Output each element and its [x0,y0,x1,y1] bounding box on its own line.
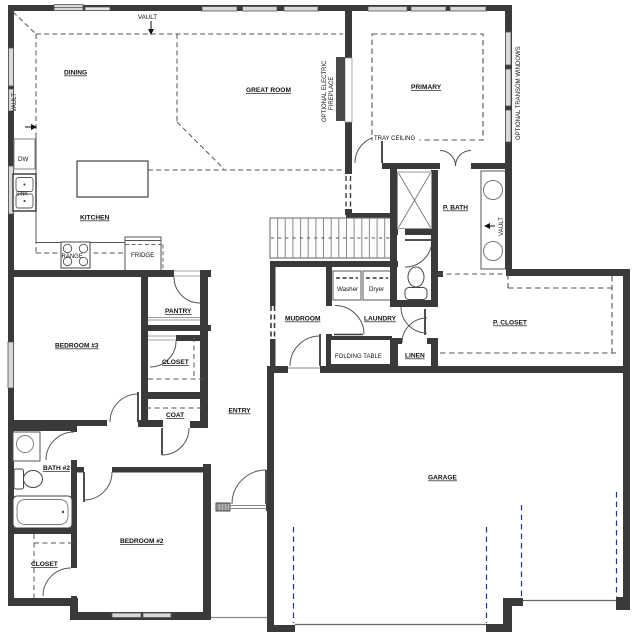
svg-text:MUDROOM: MUDROOM [285,316,321,323]
svg-text:Washer: Washer [337,286,358,293]
svg-text:VAULT: VAULT [138,14,157,21]
svg-text:GREAT ROOM: GREAT ROOM [246,87,291,94]
svg-text:PRIMARY: PRIMARY [411,84,442,91]
svg-text:CLOSET: CLOSET [162,359,189,366]
svg-text:OPTIONAL ELECTRIC: OPTIONAL ELECTRIC [322,60,328,122]
svg-text:BATH #2: BATH #2 [43,465,70,472]
svg-text:OPTIONAL TRANSOM WINDOWS: OPTIONAL TRANSOM WINDOWS [516,46,522,140]
svg-text:ENTRY: ENTRY [229,408,252,415]
svg-text:VAULT: VAULT [11,93,18,112]
svg-text:LINEN: LINEN [405,353,425,360]
svg-text:P. BATH: P. BATH [443,205,468,212]
svg-text:BEDROOM #2: BEDROOM #2 [120,538,164,545]
svg-text:DINING: DINING [64,70,87,77]
svg-text:FIREPLACE: FIREPLACE [329,77,335,110]
svg-text:BEDROOM #3: BEDROOM #3 [55,343,99,350]
svg-text:RANGE: RANGE [62,254,83,260]
svg-text:LAUNDRY: LAUNDRY [364,316,397,323]
svg-text:PANTRY: PANTRY [165,308,192,315]
svg-text:Dryer: Dryer [369,286,384,293]
svg-text:COAT: COAT [166,412,184,419]
svg-text:FOLDING TABLE: FOLDING TABLE [335,354,382,360]
svg-text:TRAY CEILING: TRAY CEILING [374,136,415,142]
svg-text:VAULT: VAULT [498,217,505,236]
svg-text:GARAGE: GARAGE [428,475,458,482]
svg-text:SINK: SINK [16,192,28,198]
svg-text:KITCHEN: KITCHEN [80,215,110,222]
svg-text:DW: DW [18,156,28,163]
svg-text:P. CLOSET: P. CLOSET [493,320,527,327]
svg-text:CLOSET: CLOSET [31,561,58,568]
svg-text:FRIDGE: FRIDGE [131,252,154,259]
